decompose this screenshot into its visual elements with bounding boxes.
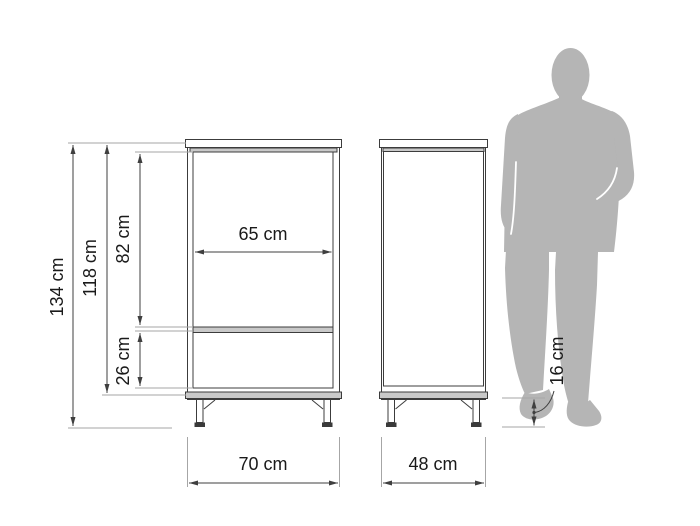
dimension-lower-section: 26 cm (113, 333, 140, 386)
side-top-panel (380, 140, 488, 148)
side-legs (381, 400, 486, 428)
dimension-upper-section: 82 cm (113, 154, 140, 325)
inner-width-label: 65 cm (238, 224, 287, 244)
dimension-body-height: 118 cm (80, 145, 107, 393)
front-top-panel (186, 140, 342, 148)
dimension-total-width: 70 cm (189, 454, 338, 483)
front-view (186, 140, 342, 428)
front-inner-cavity (193, 152, 333, 388)
leg-height-label: 16 cm (547, 336, 567, 385)
front-shelf-divider (193, 327, 333, 333)
front-top-edge-band (190, 148, 337, 152)
side-top-edge-band (383, 148, 484, 152)
depth-label: 48 cm (408, 454, 457, 474)
drawing-svg: 134 cm 118 cm 82 cm 26 cm 65 cm 70 cm 48… (0, 0, 700, 526)
dimension-drawing: 134 cm 118 cm 82 cm 26 cm 65 cm 70 cm 48… (0, 0, 700, 526)
side-bottom-panel (380, 392, 488, 399)
lower-section-label: 26 cm (113, 336, 133, 385)
silhouette-left-leg (505, 250, 549, 394)
total-width-label: 70 cm (238, 454, 287, 474)
front-legs (187, 400, 340, 428)
total-height-label: 134 cm (47, 257, 67, 316)
dimension-depth: 48 cm (383, 454, 484, 483)
body-height-label: 118 cm (80, 239, 100, 297)
silhouette-torso (504, 97, 624, 252)
side-inner-panel (384, 152, 484, 387)
side-view (380, 140, 488, 428)
human-silhouette (501, 48, 634, 427)
dimension-total-height: 134 cm (47, 145, 73, 426)
upper-section-label: 82 cm (113, 214, 133, 263)
front-bottom-panel (186, 392, 342, 399)
silhouette-right-foot (567, 400, 602, 427)
